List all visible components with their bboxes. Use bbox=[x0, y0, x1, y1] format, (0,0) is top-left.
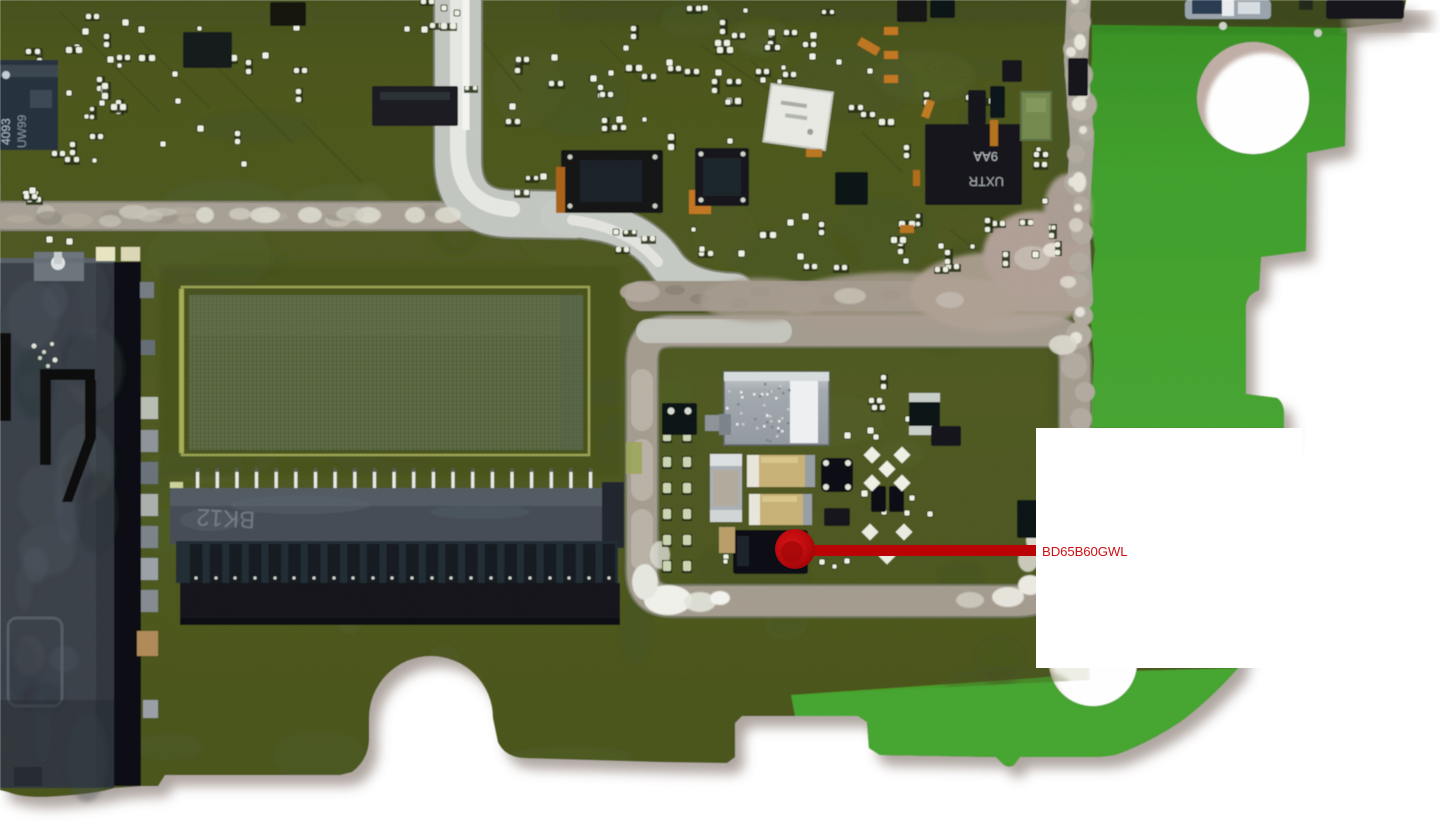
svg-text:BD65B60GWL: BD65B60GWL bbox=[1042, 544, 1128, 559]
